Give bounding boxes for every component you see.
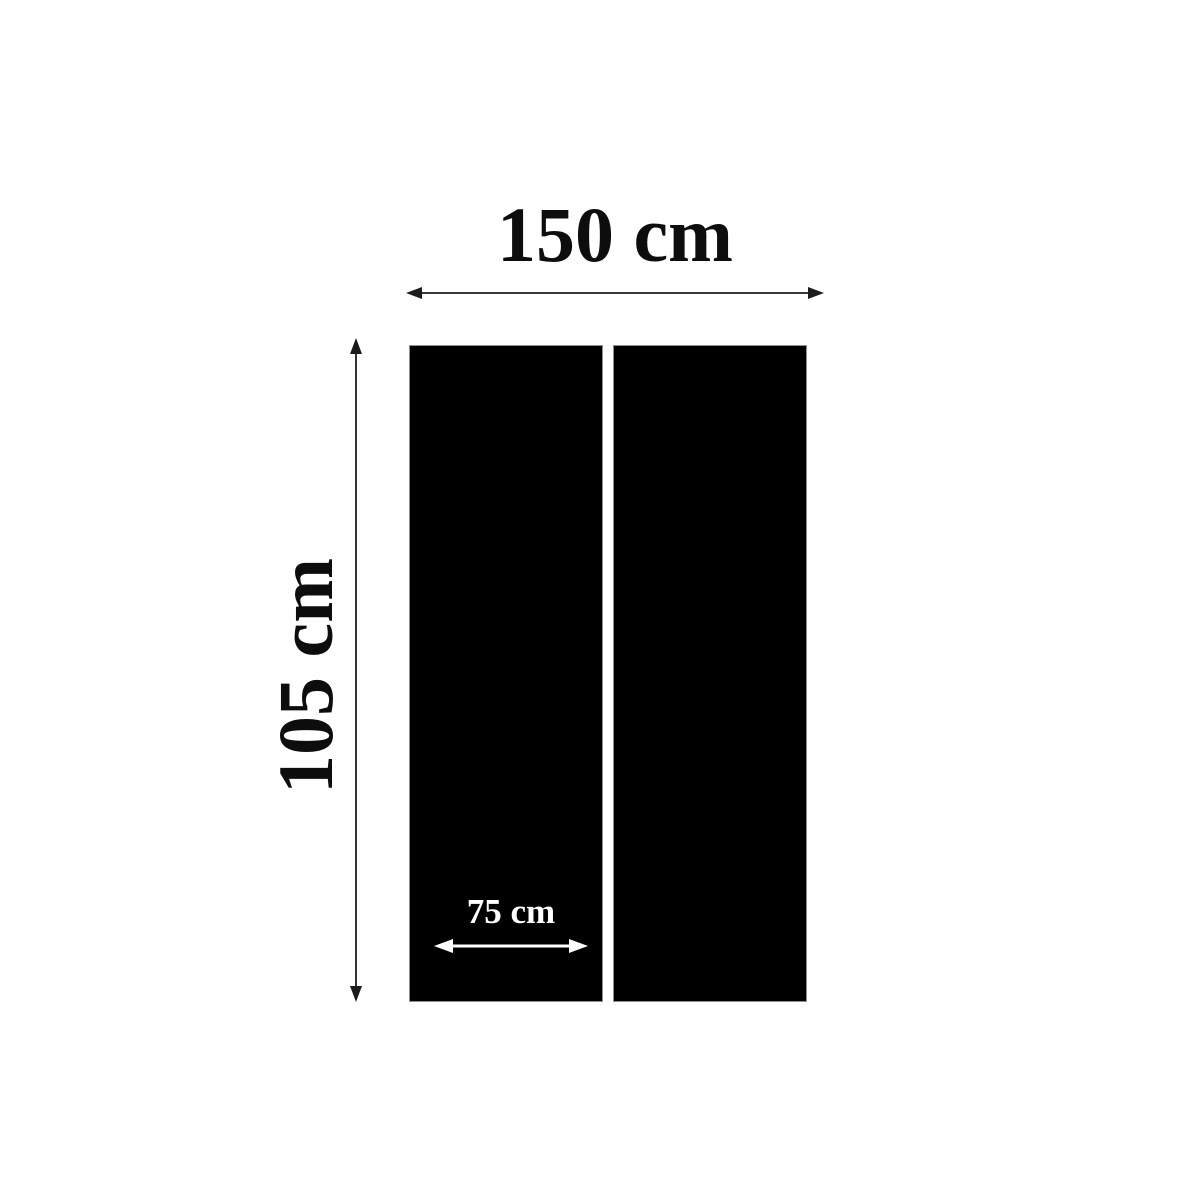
height-label: 105 cm bbox=[267, 558, 345, 794]
panel-width-label: 75 cm bbox=[436, 894, 586, 929]
panel-width-dimension-arrow bbox=[434, 938, 588, 954]
height-dimension-arrow bbox=[349, 338, 363, 1002]
total-width-dimension-arrow bbox=[406, 286, 824, 300]
dimension-diagram: 150 cm 105 cm 75 cm bbox=[0, 0, 1200, 1200]
total-width-label: 150 cm bbox=[408, 196, 822, 274]
right-panel bbox=[613, 345, 807, 1002]
